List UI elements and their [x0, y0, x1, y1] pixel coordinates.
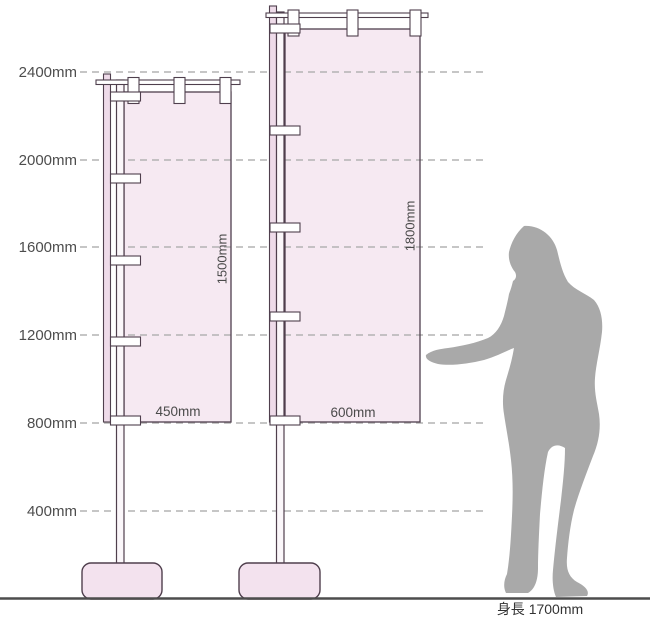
- left-pole-clip-5: [111, 416, 141, 425]
- left-pole-clip-2: [111, 174, 141, 183]
- right-pole-clip-4: [270, 312, 300, 321]
- left-banner-base: [82, 563, 162, 599]
- left-pole-clip-1: [111, 92, 141, 101]
- left-pole-clip-3: [111, 256, 141, 265]
- right-banner-sleeve: [270, 6, 277, 422]
- left-pole-clip-4: [111, 337, 141, 346]
- left-banner-tab-3: [220, 78, 231, 104]
- right-banner-tab-3: [410, 10, 421, 36]
- axis-label-2400: 2400mm: [19, 64, 77, 81]
- person-silhouette: [426, 226, 602, 597]
- right-banner-base: [239, 563, 320, 599]
- right-pole-clip-5: [270, 416, 300, 425]
- diagram-svg: 2400mm 2000mm 1600mm 1200mm 800mm 400mm …: [0, 0, 650, 617]
- left-banner-sleeve: [104, 74, 111, 422]
- right-pole: [277, 12, 285, 566]
- left-crossbar: [96, 80, 240, 85]
- left-banner-width-label: 450mm: [155, 404, 200, 419]
- axis-label-800: 800mm: [27, 415, 77, 432]
- right-banner-width-label: 600mm: [330, 405, 375, 420]
- right-banner-height-label: 1800mm: [403, 201, 418, 252]
- right-pole-clip-3: [270, 223, 300, 232]
- left-pole: [117, 80, 125, 566]
- axis-label-1600: 1600mm: [19, 239, 77, 256]
- axis-label-400: 400mm: [27, 503, 77, 520]
- right-banner-fabric: [285, 29, 420, 422]
- axis-labels: 2400mm 2000mm 1600mm 1200mm 800mm 400mm: [19, 64, 77, 520]
- axis-label-2000: 2000mm: [19, 152, 77, 169]
- left-banner-tab-2: [174, 78, 185, 104]
- left-banner-height-label: 1500mm: [215, 234, 230, 285]
- person-height-label: 身長 1700mm: [497, 601, 583, 617]
- right-pole-clip-1: [270, 24, 300, 33]
- right-banner-tab-2: [347, 10, 358, 36]
- right-pole-clip-2: [270, 126, 300, 135]
- axis-label-1200: 1200mm: [19, 327, 77, 344]
- nobori-size-diagram: 2400mm 2000mm 1600mm 1200mm 800mm 400mm …: [0, 0, 650, 617]
